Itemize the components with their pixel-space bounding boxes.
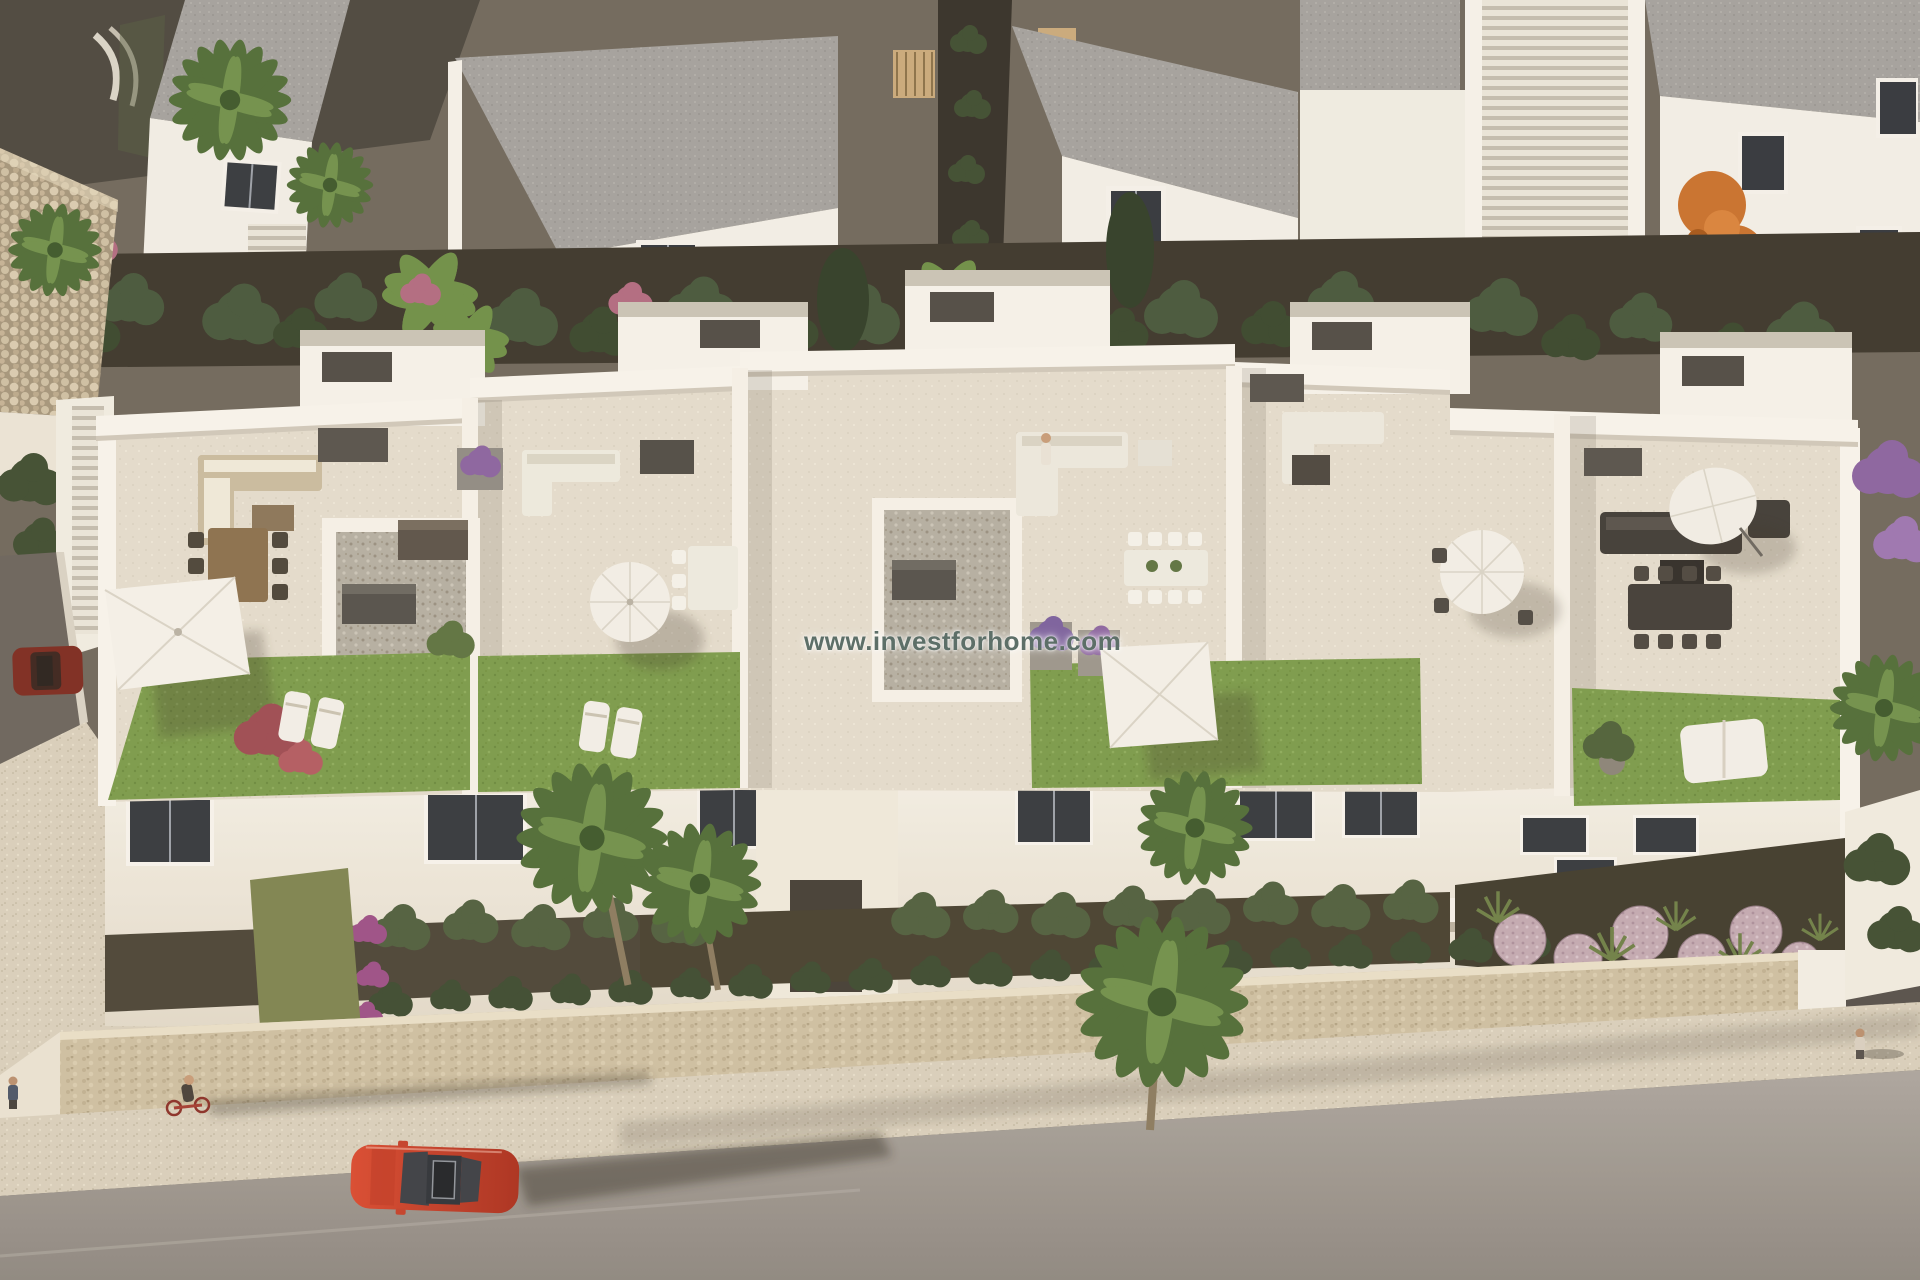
watermark: www.investforhome.com	[804, 626, 1114, 660]
render-scene: www.investforhome.com	[0, 0, 1920, 1280]
